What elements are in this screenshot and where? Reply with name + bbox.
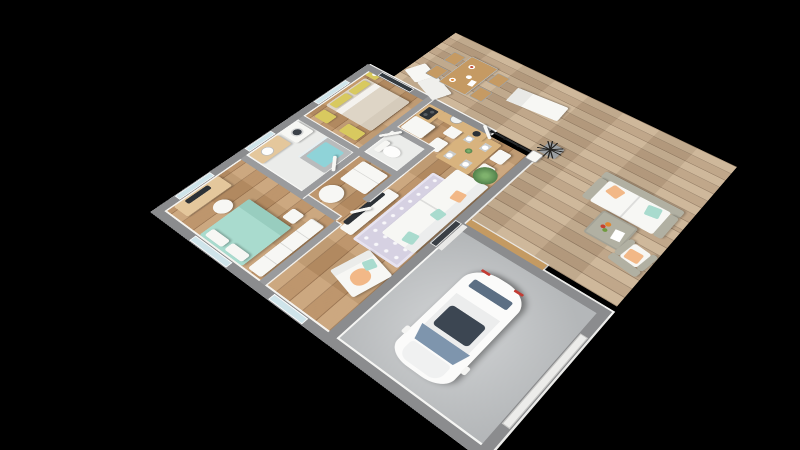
tray-paper [610,229,625,242]
floor-plan [150,10,768,450]
fruit [601,227,608,232]
floorplan-render-canvas [0,0,800,450]
burner [429,110,435,114]
table-centerpiece [463,147,473,154]
burner [422,113,428,117]
outdoor-plate [465,75,473,80]
washer-door [288,126,306,138]
napkin [467,80,477,87]
